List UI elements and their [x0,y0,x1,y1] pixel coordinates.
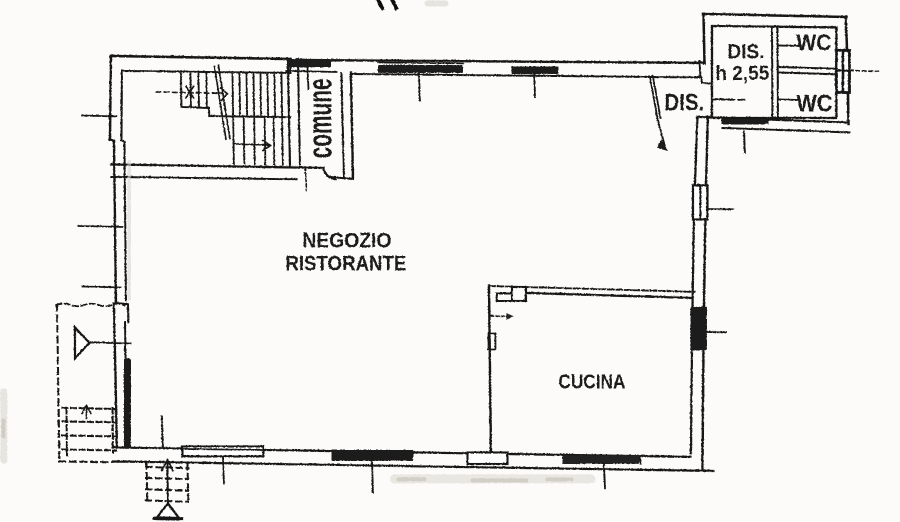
svg-text:h 2,55: h 2,55 [715,63,769,85]
svg-text:WC: WC [796,29,831,55]
svg-text:comune: comune [301,78,339,158]
svg-text:WC: WC [796,90,832,117]
svg-text:NEGOZIO: NEGOZIO [302,229,391,252]
svg-text:DIS.: DIS. [664,89,704,116]
svg-text:DIS.: DIS. [727,41,764,63]
svg-text:RISTORANTE: RISTORANTE [285,252,406,275]
svg-text:CUCINA: CUCINA [558,371,625,393]
